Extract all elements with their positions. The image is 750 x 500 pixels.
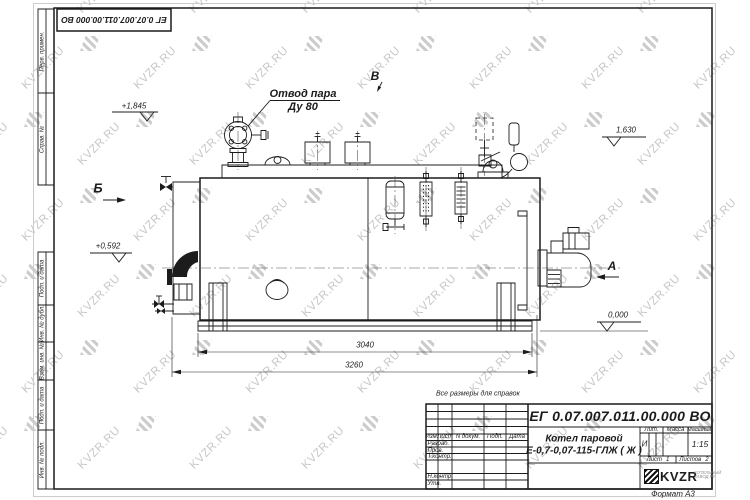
safety-valve-left [305,131,330,170]
drain-valves [152,296,174,314]
sheet-frame [34,4,716,497]
safety-valve-right [345,131,370,170]
steam-outlet-valve [225,101,341,171]
lever-valve-assembly [476,114,508,178]
saddle-supports [209,283,515,331]
burner-unit [538,228,591,288]
drawing-linework [0,0,750,500]
manhole [266,280,288,300]
drawing-sheet: KVZR.RUKVZR.RUKVZR.RUKVZR.RUKVZR.RUKVZR.… [0,0,750,500]
gauge-cylinder [383,176,404,234]
flue-elbow [167,251,198,300]
title-block-grid [426,404,712,489]
lifting-lug-left [265,157,290,166]
left-top-valve [160,177,173,192]
overflow-pipe [500,123,528,178]
water-level-gauge-1 [420,167,432,231]
water-level-gauge-2 [455,167,467,229]
